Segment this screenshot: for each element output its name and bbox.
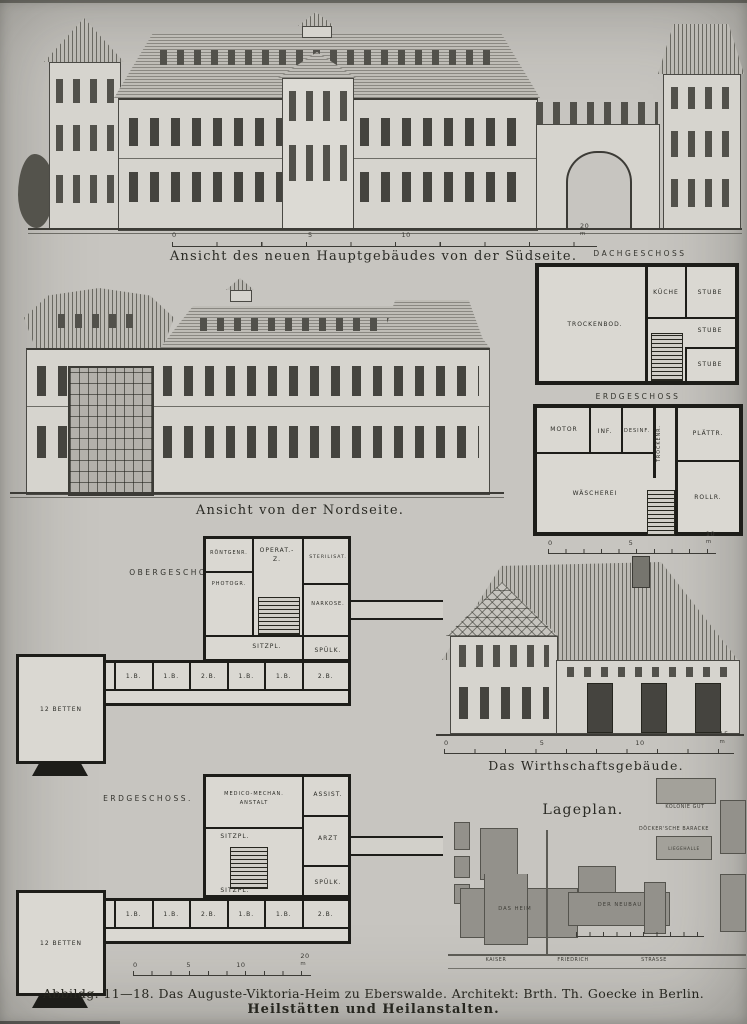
- lageplan-scale-bar: [576, 932, 704, 937]
- ground-line: [28, 228, 742, 230]
- transom-window-row: [567, 667, 729, 677]
- site-block: [720, 874, 746, 932]
- bed-room: 1.B.: [154, 901, 192, 927]
- plan-wall: [675, 460, 678, 532]
- window-row: [671, 87, 733, 109]
- room-label: SITZPL.: [244, 643, 290, 650]
- room-label: ARZT: [304, 835, 352, 842]
- room-label: 12 BETTEN: [40, 940, 82, 947]
- gate-arch: [566, 151, 632, 229]
- room-label: TROCKENBOD.: [547, 321, 643, 328]
- room-label: OPERAT.-: [254, 547, 300, 554]
- erdg-l-head-block: MEDICO-MECHAN. ANSTALT ASSIST. ARZT SITZ…: [203, 774, 351, 898]
- site-road: [448, 954, 746, 956]
- bed-room: 2.B.: [304, 663, 348, 689]
- plate-page: 0 5 10 20m Ansicht des neuen Hauptgebäud…: [0, 0, 747, 1024]
- site-outbuilding: [480, 828, 518, 880]
- room-label: SITZPL.: [212, 833, 258, 840]
- figure-caption-line1: Abbildg. 11—18. Das Auguste-Viktoria-Hei…: [0, 986, 747, 1001]
- scan-edge: [0, 0, 747, 3]
- bed-room: 1.B.: [116, 901, 154, 927]
- plan-wall: [302, 865, 348, 867]
- stairs: [230, 847, 268, 889]
- erdg-l-scale-bar: 0 5 10 20m: [133, 970, 311, 976]
- site-block: [720, 800, 746, 854]
- plan-wall: [653, 408, 656, 478]
- gate-wall: [536, 124, 660, 230]
- room-label: INF.: [591, 428, 619, 435]
- room-label: ROLLR.: [679, 494, 737, 501]
- site-block-liegehalle: LIEGEHALLE: [656, 836, 712, 860]
- street-label: FRIEDRICH: [540, 958, 606, 963]
- room-label: STERILISAT.: [304, 555, 352, 560]
- window-row: [58, 314, 138, 328]
- south-scale-bar: 0 5 10 20m: [172, 240, 597, 247]
- ground-line: [28, 233, 742, 234]
- scale-tick-label: 5: [186, 961, 191, 969]
- plan-wall: [675, 460, 739, 462]
- room-label: DESINF.: [621, 428, 653, 434]
- north-entrance-porch: [68, 366, 154, 496]
- obergeschoss-figure: OBERGESCHOSS. RÖNTGENR. OPERAT.- Z. STER…: [8, 532, 444, 780]
- site-road: [448, 968, 746, 969]
- south-cupola-roof: [298, 12, 334, 26]
- room-label: MEDICO-MECHAN.: [208, 791, 300, 797]
- room-label: NARKOSE.: [304, 601, 352, 607]
- south-left-tower: [49, 62, 121, 230]
- site-outbuilding: [454, 856, 470, 878]
- room-label: STUBE: [687, 327, 733, 334]
- erdg-l-bed-pavilion: 12 BETTEN: [16, 890, 106, 996]
- room-label: PLÄTTR.: [679, 430, 737, 437]
- bed-room: 1.B.: [266, 663, 304, 689]
- room-label: STUBE: [687, 361, 733, 368]
- room-label: Z.: [254, 556, 300, 563]
- site-block-kolonie: [656, 778, 716, 804]
- stairs: [647, 490, 675, 536]
- room-label: ANSTALT: [208, 800, 300, 806]
- wirtschaft-scale-bar: 0 5 10 15m: [444, 748, 734, 754]
- ground-line: [10, 497, 504, 498]
- scale-tick-label: 5: [540, 739, 545, 747]
- scale-tick-label: 10m: [706, 539, 712, 548]
- window-row: [56, 175, 114, 203]
- plan-wall: [302, 583, 348, 585]
- oberg-head-block: RÖNTGENR. OPERAT.- Z. STERILISAT. PHOTOG…: [203, 536, 351, 662]
- erdg-l-bridge-corridor: [351, 836, 443, 856]
- room-label: WÄSCHEREI: [545, 490, 645, 497]
- bed-room: 1.B.: [266, 901, 304, 927]
- south-left-tower-roof: [44, 18, 124, 62]
- north-cupola-roof: [226, 278, 254, 290]
- door: [587, 683, 613, 733]
- scale-tick-label: 10: [402, 231, 411, 239]
- window-row: [56, 125, 114, 151]
- bed-room: 1.B.: [229, 663, 267, 689]
- building-label: DER NEUBAU: [576, 902, 664, 908]
- plan-wall: [537, 452, 653, 454]
- window-row: [671, 131, 733, 157]
- bed-room: 1.B.: [154, 663, 192, 689]
- wirtschaftsgebaeude-figure: 0 5 10 15m Das Wirthschaftsgebäude.: [436, 556, 744, 770]
- south-cupola: [302, 26, 332, 38]
- site-label: DÖCKER'SCHE BARACKE: [628, 827, 720, 832]
- dachgeschoss-title: DACHGESCHOSS: [540, 249, 740, 258]
- scale-tick-label: 0: [172, 231, 177, 239]
- scale-tick-label: 5: [308, 231, 313, 239]
- street-label: KAISER: [468, 958, 524, 963]
- scale-tick-label: 0: [444, 739, 449, 747]
- window-row: [289, 145, 347, 181]
- scale-tick-label: 10: [236, 961, 245, 969]
- room-label: TROCKENR.: [657, 414, 662, 474]
- site-outbuilding: [454, 822, 470, 850]
- bed-room: 2.B.: [304, 901, 348, 927]
- site-road: [546, 830, 548, 956]
- street-label: STRASSE: [624, 958, 684, 963]
- new-building-footprint: [644, 882, 666, 934]
- erdgeschoss-left-figure: ERDGESCHOSS. MEDICO-MECHAN. ANSTALT ASSI…: [8, 772, 444, 1002]
- room-label: SPÜLK.: [304, 879, 352, 886]
- room-label: MOTOR: [541, 426, 587, 433]
- ground-line: [436, 734, 744, 736]
- oberg-bed-pavilion: 12 BETTEN: [16, 654, 106, 764]
- wirtschaftsgebaeude-caption: Das Wirthschaftsgebäude.: [446, 758, 726, 773]
- south-center-bay: [282, 78, 354, 230]
- south-right-tower: [663, 74, 741, 230]
- room-label: SPÜLK.: [304, 647, 352, 654]
- scale-tick-label: 0: [548, 539, 553, 547]
- scale-tick-label: 5: [629, 539, 634, 547]
- room-label: SITZPL.: [212, 887, 258, 894]
- north-right-pavilion-roof: [378, 300, 486, 348]
- bed-room: 1.B.: [229, 901, 267, 927]
- scale-tick-label: 20m: [300, 961, 306, 970]
- north-elevation-caption: Ansicht von der Nordseite.: [110, 503, 490, 518]
- plan-wall: [206, 635, 348, 637]
- bed-room: 1.B.: [116, 663, 154, 689]
- room-label: RÖNTGENR.: [206, 551, 252, 556]
- lageplan-figure: KOLONIE GUT DÖCKER'SCHE BARACKE LIEGEHAL…: [448, 772, 746, 988]
- dachgeschoss-plan: TROCKENBOD. KÜCHE STUBE STUBE STUBE: [535, 263, 739, 385]
- gate-gallery-row: [536, 102, 658, 124]
- room-label: KÜCHE: [647, 289, 685, 296]
- oberg-bridge-corridor: [351, 600, 443, 620]
- south-elevation-figure: [28, 6, 742, 238]
- erdgeschoss-right-scale-bar: 0 5 10m: [548, 548, 716, 554]
- south-right-tower-roof: [658, 24, 744, 74]
- bed-room: 2.B.: [191, 663, 229, 689]
- erdgeschoss-right-plan: MOTOR INF. DESINF. TROCKENR. PLÄTTR. WÄS…: [533, 404, 743, 536]
- chimney: [632, 556, 650, 588]
- room-label: PHOTOGR.: [206, 581, 252, 587]
- plan-wall: [645, 317, 735, 319]
- scale-tick-label: 0: [133, 961, 138, 969]
- window-row: [459, 687, 549, 719]
- site-label: KOLONIE GUT: [640, 805, 730, 810]
- scale-tick-label: 15m: [720, 739, 726, 748]
- scale-tick-label: 10: [635, 739, 644, 747]
- ground-line: [10, 492, 504, 494]
- erdgeschoss-right-title: ERDGESCHOSS: [538, 392, 738, 401]
- wirtschaft-right-wall: [556, 660, 740, 734]
- plan-wall: [645, 267, 648, 381]
- stairs: [258, 597, 300, 635]
- stairs: [651, 333, 683, 381]
- room-label: STUBE: [687, 289, 733, 296]
- plan-wall: [206, 571, 252, 573]
- window-row: [56, 79, 114, 103]
- window-row: [671, 179, 733, 207]
- window-row: [459, 645, 549, 667]
- scale-tick-label: 20m: [580, 231, 586, 240]
- lageplan-title: Lageplan.: [518, 802, 648, 818]
- room-label: ASSIST.: [304, 791, 352, 798]
- door: [695, 683, 721, 733]
- plan-wall: [206, 827, 302, 829]
- north-elevation-figure: [10, 270, 504, 500]
- window-row: [289, 91, 347, 121]
- room-label: 12 BETTEN: [40, 706, 82, 713]
- plan-wall: [685, 347, 735, 349]
- north-cupola: [230, 290, 252, 302]
- bed-room: 2.B.: [191, 901, 229, 927]
- wirtschaft-left-wall: [450, 636, 558, 734]
- figure-caption-line2: Heilstätten und Heilanstalten.: [0, 1002, 747, 1017]
- door: [641, 683, 667, 733]
- plan-wall: [302, 815, 348, 817]
